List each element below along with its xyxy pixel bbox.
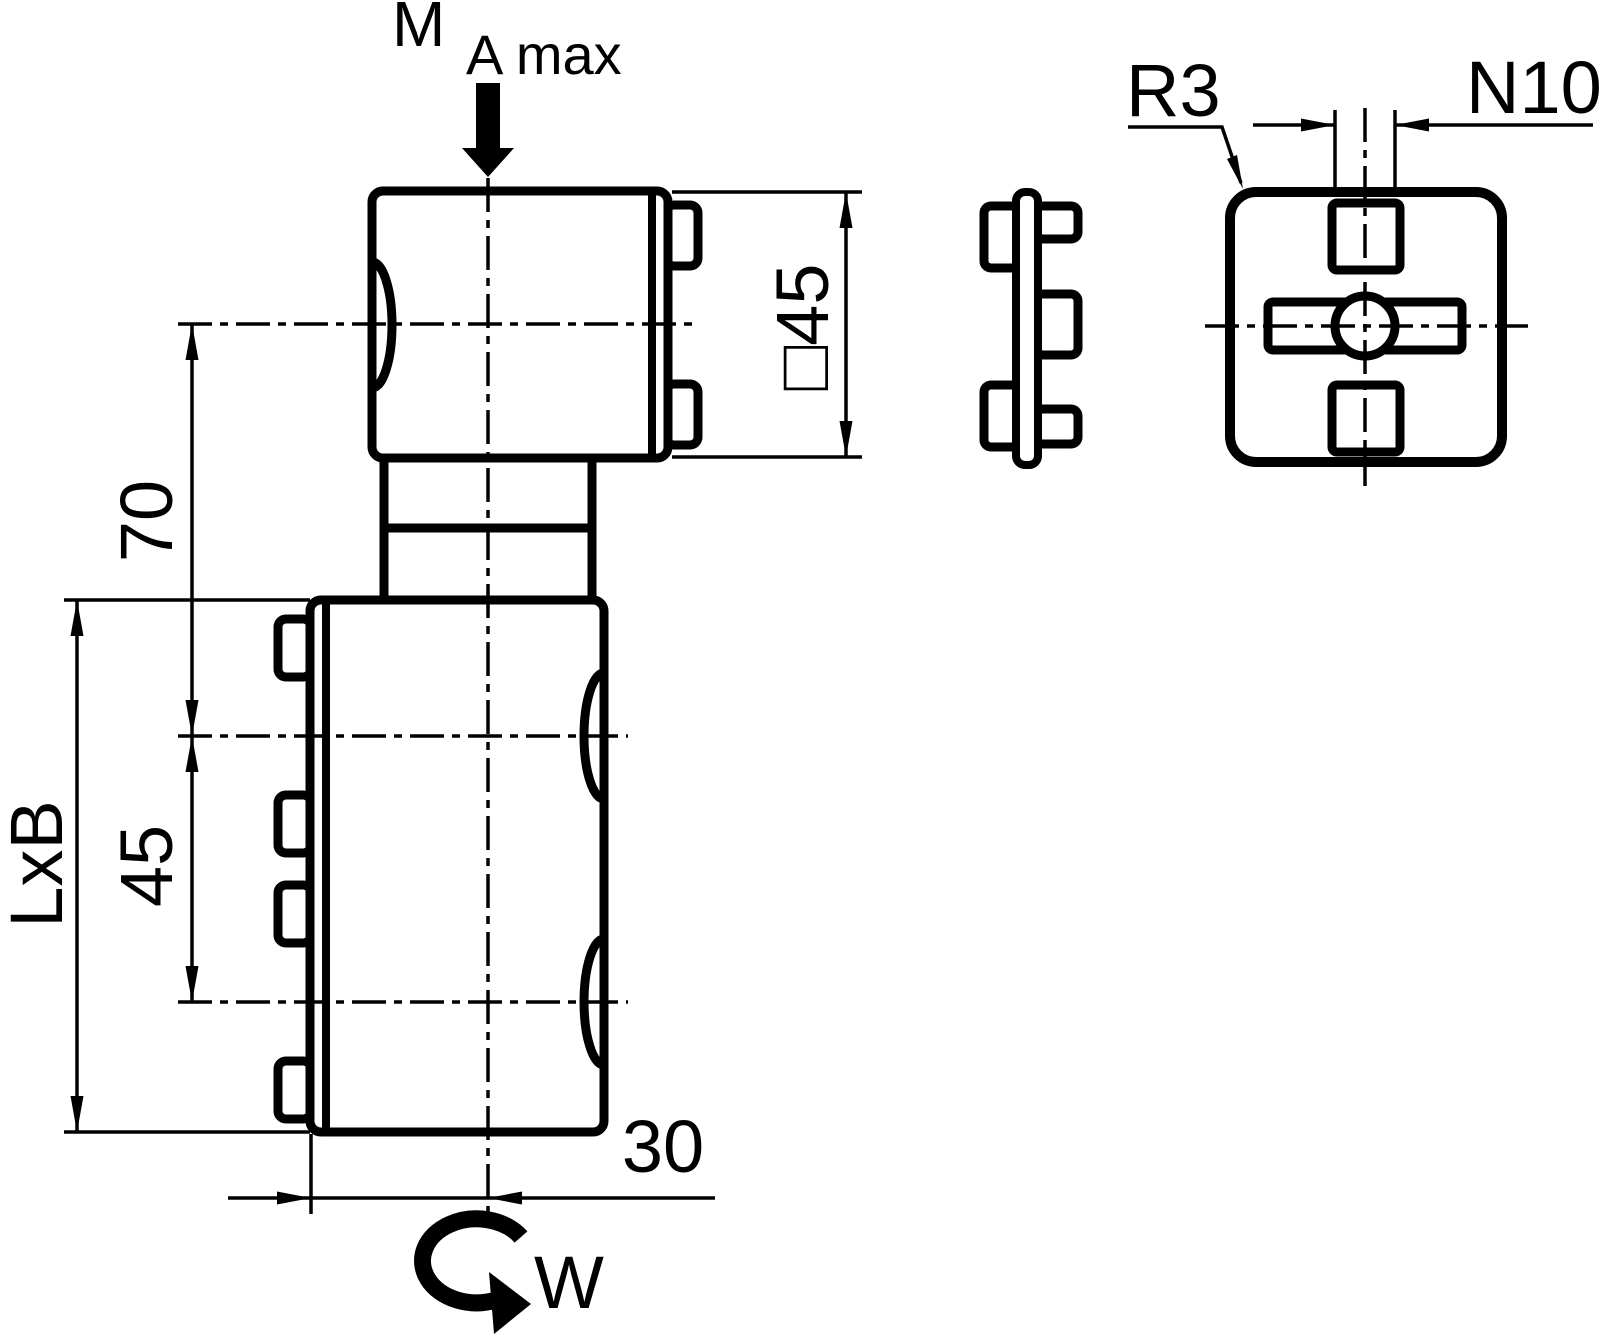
- side-tab-right-middle: [1036, 294, 1078, 355]
- r3-label: R3: [1126, 49, 1221, 132]
- arrow-up-icon: [186, 736, 199, 772]
- side-view: [984, 192, 1078, 465]
- side-plate-outline: [1016, 192, 1038, 465]
- dim-30-text: 30: [622, 1105, 704, 1188]
- arrow-down-icon: [186, 966, 199, 1002]
- rotation-arrow-icon: [423, 1219, 531, 1334]
- rotation-label: W: [534, 1241, 604, 1324]
- rotation-arrow-head: [489, 1272, 531, 1334]
- lower-body-outline: [310, 600, 604, 1132]
- leader-r3: R3: [1126, 49, 1243, 189]
- arrow-up-icon: [840, 192, 853, 228]
- dim-square45-text: □45: [761, 263, 844, 390]
- arrow-down-icon: [186, 700, 199, 736]
- n10-label: N10: [1466, 46, 1600, 129]
- arrow-up-icon: [71, 600, 84, 636]
- arrow-down-icon: [71, 1096, 84, 1132]
- r3-leader-line: [1128, 127, 1241, 183]
- side-tab-right-top: [1036, 206, 1078, 239]
- arrow-up-icon: [186, 324, 199, 360]
- torque-label: M: [392, 0, 445, 60]
- end-view: R3 N10: [1126, 46, 1600, 486]
- front-view: M A max: [0, 0, 862, 1334]
- dim-45: 45: [105, 736, 199, 1002]
- technical-drawing: M A max: [0, 0, 1600, 1336]
- technical-drawing-page: M A max: [0, 0, 1600, 1336]
- arrow-down-icon: [840, 421, 853, 457]
- dim-lxb-text: LxB: [0, 800, 78, 928]
- dim-n10: N10: [1253, 46, 1600, 197]
- arrow-left-icon: [1395, 119, 1429, 132]
- torque-sublabel: A max: [466, 23, 622, 86]
- arrow-right-icon: [1301, 119, 1335, 132]
- arrow-right-icon: [277, 1192, 311, 1205]
- arrow-left-icon: [488, 1192, 522, 1205]
- torque-arrow-icon: [462, 83, 514, 177]
- lower-body: [278, 600, 604, 1132]
- leader-arrow-icon: [1227, 155, 1243, 189]
- dim-70-text: 70: [105, 480, 188, 562]
- dim-45-text: 45: [105, 825, 188, 907]
- dim-70: 70: [105, 324, 199, 736]
- side-tab-right-bottom: [1036, 409, 1078, 444]
- torque-arrow-head: [462, 148, 514, 177]
- torque-arrow-shaft: [476, 83, 500, 149]
